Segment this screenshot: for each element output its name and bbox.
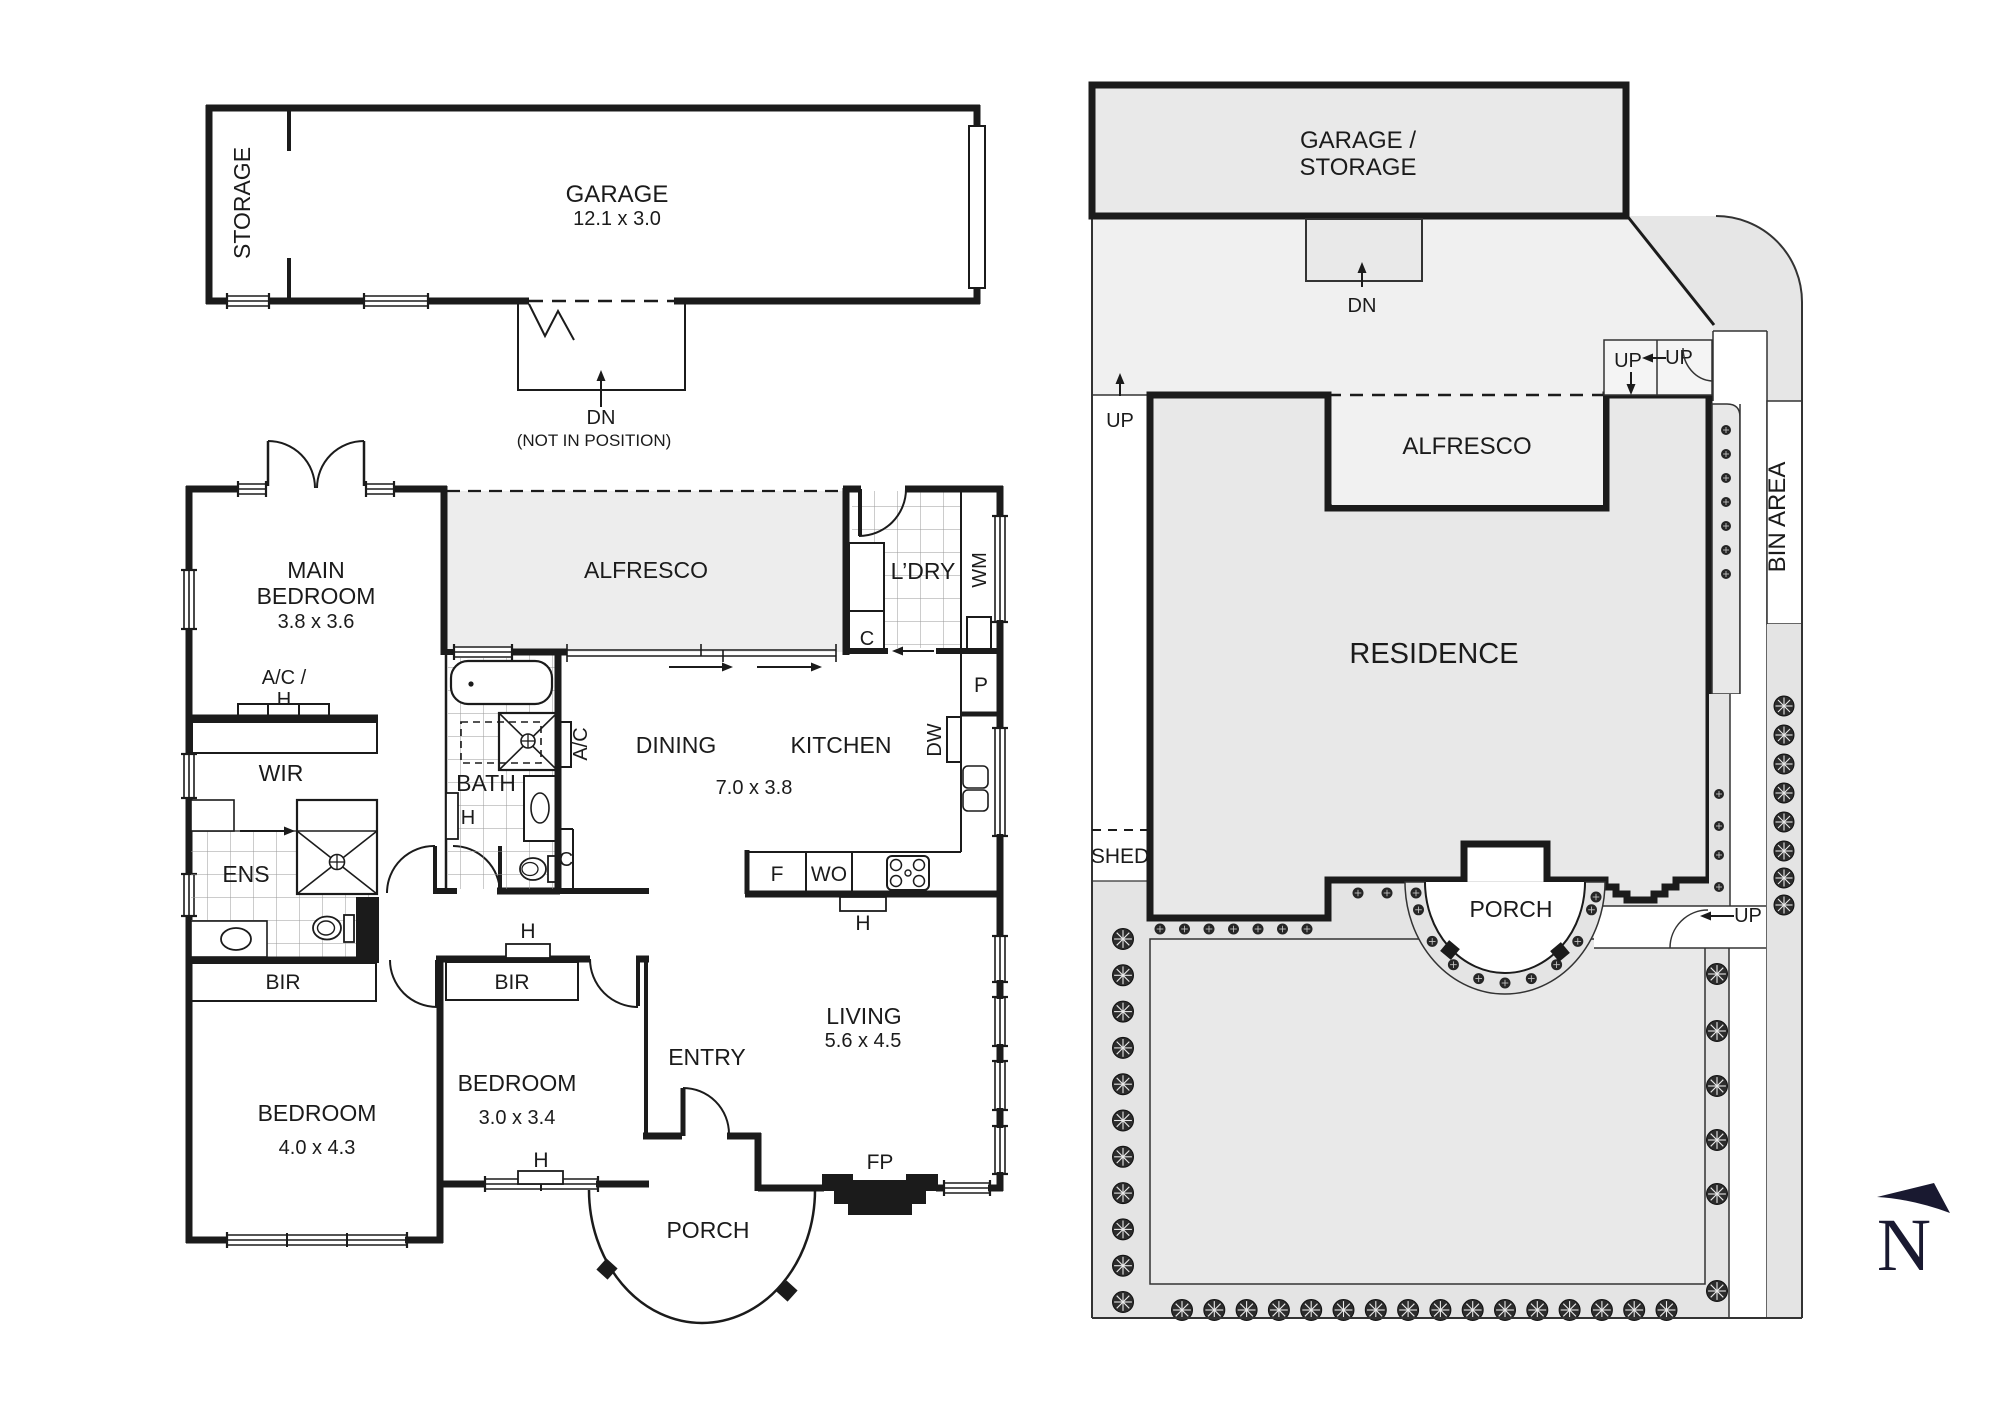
- svg-text:L’DRY: L’DRY: [891, 558, 956, 584]
- svg-text:BEDROOM: BEDROOM: [458, 1070, 577, 1096]
- svg-text:RESIDENCE: RESIDENCE: [1349, 638, 1518, 670]
- svg-text:H: H: [461, 807, 475, 829]
- svg-text:GARAGE /: GARAGE /: [1300, 127, 1416, 154]
- svg-text:P: P: [974, 674, 988, 697]
- svg-text:KITCHEN: KITCHEN: [791, 732, 892, 758]
- svg-text:BEDROOM: BEDROOM: [257, 583, 376, 609]
- svg-text:UP: UP: [1734, 905, 1762, 927]
- svg-text:DINING: DINING: [636, 732, 717, 758]
- svg-text:N: N: [1877, 1204, 1931, 1287]
- svg-text:BEDROOM: BEDROOM: [258, 1100, 377, 1126]
- svg-text:UP: UP: [1665, 347, 1693, 369]
- svg-text:WIR: WIR: [259, 760, 304, 786]
- svg-text:ENTRY: ENTRY: [668, 1044, 746, 1070]
- svg-text:PORCH: PORCH: [1469, 896, 1552, 922]
- svg-text:UP: UP: [1106, 410, 1134, 432]
- svg-text:7.0 x 3.8: 7.0 x 3.8: [716, 777, 793, 799]
- svg-text:DN: DN: [1348, 295, 1377, 317]
- svg-text:3.0 x 3.4: 3.0 x 3.4: [479, 1107, 556, 1129]
- svg-text:WO: WO: [811, 863, 847, 886]
- svg-text:LIVING: LIVING: [826, 1003, 901, 1029]
- svg-text:H: H: [533, 1149, 548, 1172]
- svg-text:BIR: BIR: [494, 971, 529, 994]
- svg-text:H: H: [855, 912, 870, 935]
- svg-text:FP: FP: [867, 1151, 894, 1174]
- svg-text:SHED: SHED: [1091, 845, 1149, 868]
- svg-text:12.1 x 3.0: 12.1 x 3.0: [573, 208, 661, 230]
- svg-text:ALFRESCO: ALFRESCO: [1402, 433, 1531, 460]
- svg-text:C: C: [860, 628, 874, 650]
- svg-text:STORAGE: STORAGE: [229, 147, 255, 259]
- svg-text:BIN AREA: BIN AREA: [1764, 462, 1791, 573]
- svg-text:3.8 x 3.6: 3.8 x 3.6: [278, 611, 355, 633]
- svg-text:ALFRESCO: ALFRESCO: [584, 557, 708, 583]
- svg-text:DN: DN: [587, 407, 616, 429]
- svg-text:H: H: [520, 920, 535, 943]
- svg-text:MAIN: MAIN: [287, 557, 345, 583]
- svg-text:PORCH: PORCH: [666, 1217, 749, 1243]
- svg-text:BATH: BATH: [456, 770, 516, 796]
- svg-text:ENS: ENS: [222, 861, 269, 887]
- svg-text:A/C /: A/C /: [262, 667, 307, 689]
- svg-text:4.0 x 4.3: 4.0 x 4.3: [279, 1137, 356, 1159]
- svg-text:(NOT IN POSITION): (NOT IN POSITION): [517, 431, 672, 450]
- svg-text:STORAGE: STORAGE: [1300, 154, 1417, 181]
- svg-text:A/C: A/C: [570, 727, 592, 760]
- svg-text:F: F: [771, 863, 784, 886]
- svg-text:DW: DW: [924, 723, 946, 756]
- svg-text:UP: UP: [1614, 350, 1642, 372]
- svg-text:5.6 x 4.5: 5.6 x 4.5: [825, 1030, 902, 1052]
- svg-text:BIR: BIR: [265, 971, 300, 994]
- svg-text:WM: WM: [969, 552, 991, 588]
- svg-text:GARAGE: GARAGE: [566, 181, 669, 208]
